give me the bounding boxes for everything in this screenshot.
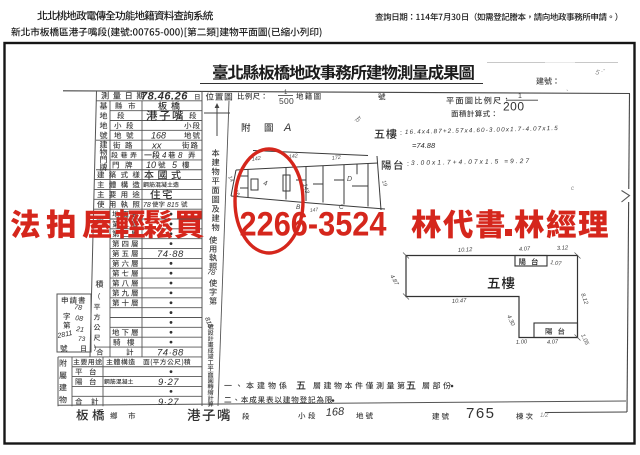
svg-text:xx: xx [151, 141, 163, 152]
svg-text:765: 765 [466, 405, 496, 422]
svg-text:4: 4 [263, 180, 268, 188]
svg-text:`: ` [566, 89, 569, 98]
svg-text:10.12: 10.12 [458, 247, 474, 254]
svg-text:2811: 2811 [56, 330, 73, 340]
svg-text:21: 21 [75, 326, 85, 334]
svg-text:78: 78 [74, 304, 83, 312]
svg-text:4.07: 4.07 [519, 246, 531, 253]
svg-text:.-: .- [601, 67, 606, 74]
svg-text:200: 200 [503, 100, 525, 114]
svg-text:4.87: 4.87 [388, 274, 399, 287]
svg-text:D: D [347, 176, 352, 183]
svg-text:=74.88: =74.88 [412, 141, 436, 150]
svg-text:500: 500 [279, 96, 294, 106]
svg-text:ゟ: ゟ [353, 113, 363, 124]
svg-text::: : [407, 161, 409, 168]
svg-text:168: 168 [151, 131, 166, 141]
svg-text:9·27: 9·27 [158, 397, 179, 408]
svg-text:19: 19 [380, 180, 388, 188]
svg-text:4.30: 4.30 [505, 314, 516, 327]
svg-text::: : [400, 130, 402, 137]
svg-text:A: A [283, 122, 291, 134]
svg-text:172: 172 [331, 155, 341, 162]
svg-text:16.4x4.87+2.57x4.60-3.00x1.7-4: 16.4x4.87+2.57x4.60-3.00x1.7-4.07x1.5 [405, 125, 559, 136]
svg-text:8: 8 [178, 151, 183, 160]
svg-text:8.12: 8.12 [579, 293, 589, 306]
svg-text:5: 5 [594, 69, 600, 77]
svg-text:78.46.26: 78.46.26 [141, 91, 188, 103]
svg-text:78: 78 [207, 269, 216, 277]
svg-text:1.07: 1.07 [550, 260, 563, 268]
svg-text:4.07: 4.07 [547, 339, 559, 346]
svg-text:4: 4 [162, 151, 167, 160]
svg-text:3.12: 3.12 [557, 245, 569, 252]
svg-text:815: 815 [167, 202, 179, 209]
svg-text:10.47: 10.47 [452, 298, 468, 305]
svg-text:1.05: 1.05 [579, 333, 590, 346]
svg-text:2266-3524: 2266-3524 [240, 206, 387, 244]
svg-text:73: 73 [78, 336, 86, 343]
svg-text:168: 168 [325, 406, 345, 419]
svg-text:10: 10 [146, 160, 156, 170]
svg-text:74·88: 74·88 [157, 249, 184, 260]
svg-text:9·27: 9·27 [158, 377, 179, 388]
svg-text:74·88: 74·88 [157, 348, 184, 359]
svg-text:1.00: 1.00 [516, 339, 528, 346]
svg-text:3.00x1.7+4.07x1.5 =9.27: 3.00x1.7+4.07x1.5 =9.27 [411, 158, 531, 167]
svg-text:1/2: 1/2 [540, 413, 549, 419]
svg-text:c: c [571, 186, 574, 192]
svg-text:78: 78 [143, 202, 151, 209]
svg-text:08: 08 [75, 315, 84, 323]
svg-text:5: 5 [172, 160, 178, 170]
